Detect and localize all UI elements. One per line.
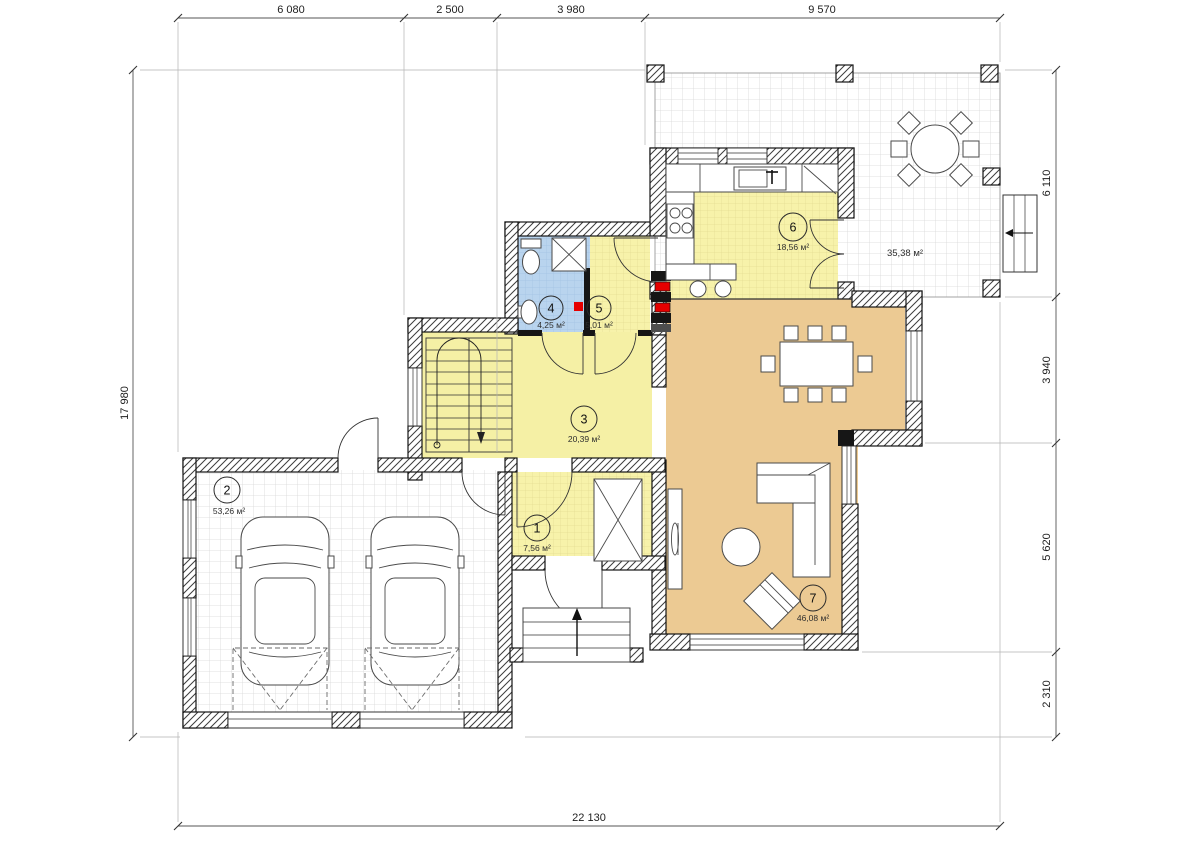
- dim-label: 3 980: [557, 4, 585, 16]
- room-number: 1: [534, 522, 541, 536]
- room-area: 53,26 м²: [213, 506, 245, 516]
- porch-steps: [523, 608, 630, 662]
- chair: [832, 388, 846, 402]
- room-area: 5,01 м²: [585, 320, 613, 330]
- terrace-column: [983, 280, 1000, 297]
- floor-plan-drawing: 1 7,56 м² 2 53,26 м² 3 20,39 м² 4 4,25 м…: [0, 0, 1200, 849]
- stool: [715, 281, 731, 297]
- kitchen-counter-bottom: [666, 264, 736, 280]
- dim-label: 17 980: [119, 386, 131, 420]
- room-area: 7,56 м²: [523, 543, 551, 553]
- dim-right: 6 110 3 940 5 620 2 310: [1041, 66, 1060, 741]
- window: [183, 500, 196, 558]
- dim-left: 17 980: [119, 66, 137, 741]
- toilet: [521, 239, 541, 274]
- window: [408, 368, 422, 426]
- window: [183, 598, 196, 656]
- dim-label: 6 110: [1041, 170, 1053, 197]
- chair: [808, 326, 822, 340]
- terrace-column: [836, 65, 853, 82]
- terrace-side-steps: [1003, 195, 1037, 272]
- kitchen-sink: [734, 167, 786, 190]
- dim-bottom: 22 130: [174, 812, 1004, 830]
- dim-label: 2 500: [436, 4, 464, 16]
- car: [236, 517, 334, 685]
- terrace-column: [647, 65, 664, 82]
- dim-label: 3 940: [1041, 356, 1053, 384]
- window: [727, 148, 767, 164]
- coffee-table: [722, 528, 760, 566]
- red-marker: [574, 302, 583, 311]
- terrace-column: [983, 168, 1000, 185]
- terrace-area-label: 35,38 м²: [887, 248, 923, 259]
- window: [842, 446, 856, 504]
- room-number: 3: [581, 413, 588, 427]
- chair: [784, 388, 798, 402]
- window: [906, 331, 922, 401]
- dim-label: 22 130: [572, 812, 606, 824]
- chair: [963, 141, 979, 157]
- hall5-floor: [590, 236, 650, 332]
- window: [690, 634, 804, 650]
- chair: [858, 356, 872, 372]
- room-number: 2: [224, 484, 231, 498]
- floor-plan-canvas: 1 7,56 м² 2 53,26 м² 3 20,39 м² 4 4,25 м…: [0, 0, 1200, 849]
- room-area: 20,39 м²: [568, 434, 600, 444]
- dim-label: 6 080: [277, 4, 305, 16]
- stool: [690, 281, 706, 297]
- window: [678, 148, 718, 164]
- room-area: 46,08 м²: [797, 613, 829, 623]
- room-area: 18,56 м²: [777, 242, 809, 252]
- car: [366, 517, 464, 685]
- shower: [552, 238, 586, 271]
- room-number: 4: [548, 302, 555, 316]
- chair: [784, 326, 798, 340]
- dim-label: 9 570: [808, 4, 836, 16]
- round-table: [911, 125, 959, 173]
- dining-table: [780, 342, 853, 386]
- tv-cabinet: [668, 489, 682, 589]
- chair: [832, 326, 846, 340]
- dim-label: 5 620: [1041, 533, 1053, 561]
- chair: [761, 356, 775, 372]
- room-number: 5: [596, 302, 603, 316]
- dim-label: 2 310: [1041, 680, 1053, 708]
- wardrobe: [594, 479, 642, 561]
- room-number: 6: [790, 221, 797, 235]
- room-number: 7: [810, 592, 817, 606]
- garage-door-opening: [228, 712, 332, 728]
- terrace-column: [981, 65, 998, 82]
- door-side-exterior: [338, 418, 378, 458]
- dim-top: 6 080 2 500 3 980 9 570: [174, 4, 1004, 22]
- chair: [891, 141, 907, 157]
- chair: [808, 388, 822, 402]
- garage-door-opening: [360, 712, 464, 728]
- room-area: 4,25 м²: [537, 320, 565, 330]
